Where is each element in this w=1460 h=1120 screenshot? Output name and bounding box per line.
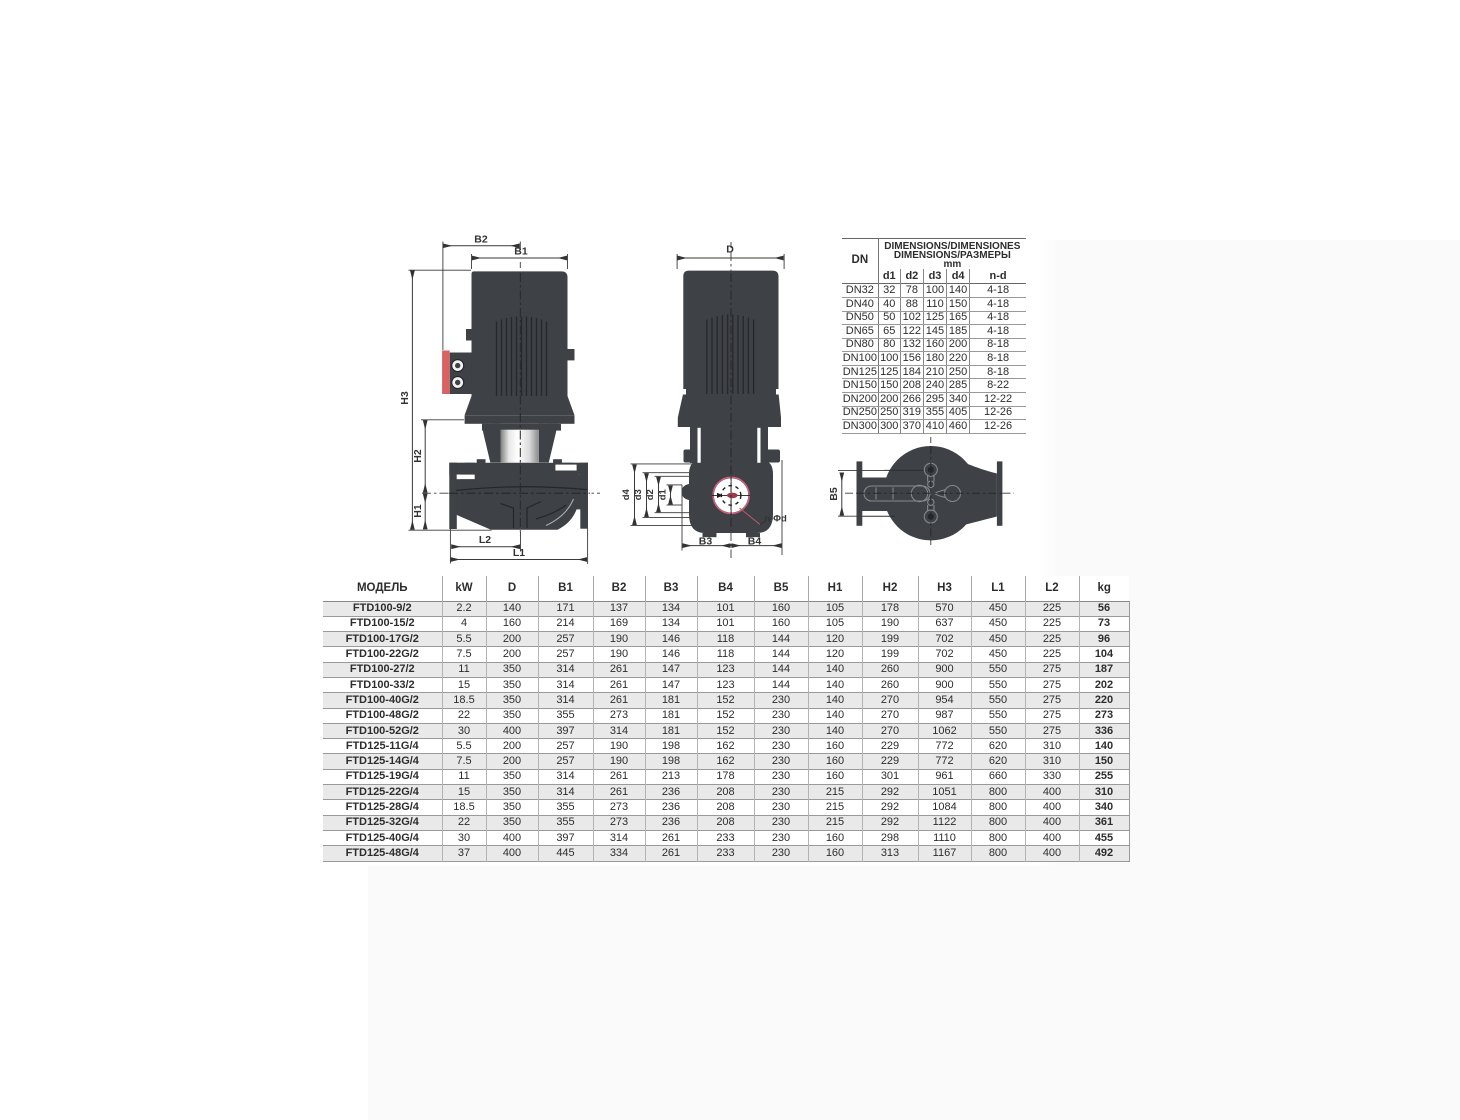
svg-text:D: D — [726, 244, 734, 256]
svg-text:d3: d3 — [633, 489, 644, 500]
svg-text:B2: B2 — [474, 233, 488, 245]
svg-text:H3: H3 — [399, 391, 411, 405]
svg-text:H2: H2 — [412, 449, 424, 463]
svg-text:L2: L2 — [479, 534, 491, 546]
svg-text:H1: H1 — [412, 504, 424, 518]
svg-text:d4: d4 — [621, 488, 632, 500]
svg-text:d1: d1 — [658, 488, 669, 500]
svg-text:B5: B5 — [828, 487, 840, 501]
svg-text:d2: d2 — [645, 489, 656, 500]
svg-text:n-Φd: n-Φd — [764, 514, 787, 525]
svg-text:B1: B1 — [514, 245, 528, 257]
svg-text:L1: L1 — [513, 547, 525, 559]
